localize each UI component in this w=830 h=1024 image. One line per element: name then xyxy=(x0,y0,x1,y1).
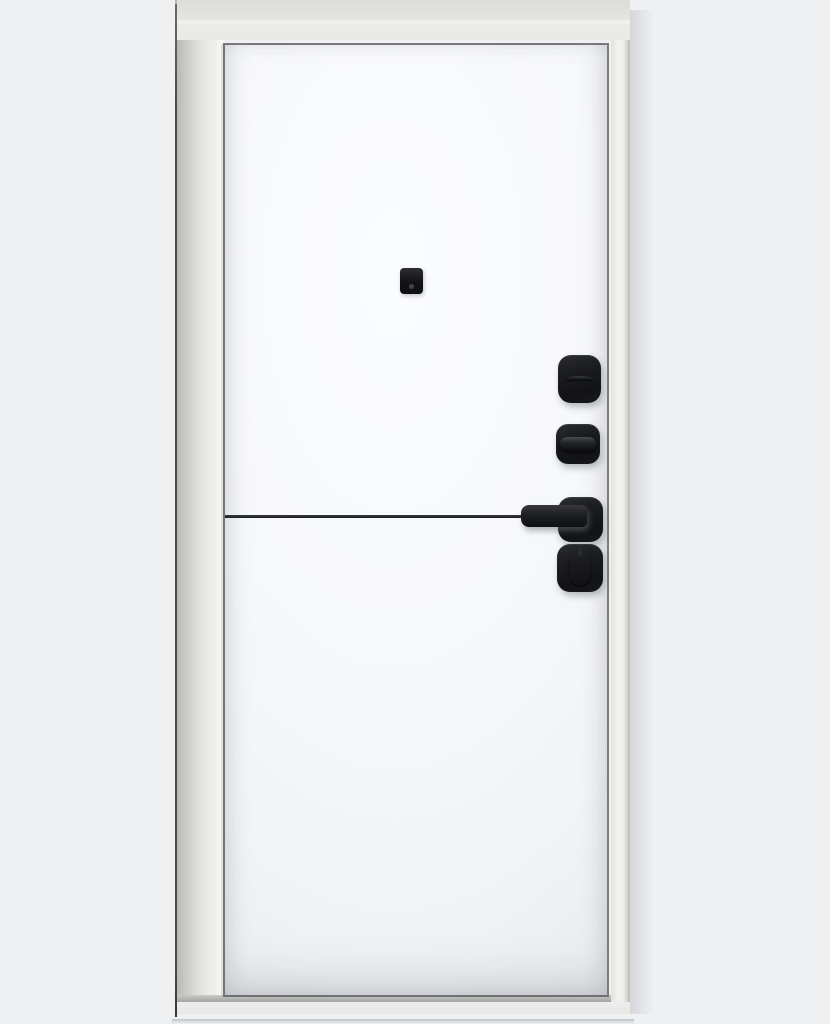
horizontal-thumbturn-knob xyxy=(560,437,596,451)
frame-bottom-shadow xyxy=(177,995,611,1002)
peephole-lens xyxy=(409,284,414,289)
keyhole-escutcheon xyxy=(558,355,601,403)
frame-cast-shadow-right xyxy=(630,10,654,1014)
frame-head-casing xyxy=(177,0,630,40)
vertical-thumbturn-knob xyxy=(570,551,590,585)
frame-right-jamb xyxy=(611,0,630,1014)
deadbolt-thumbturn-escutcheon xyxy=(557,544,603,592)
frame-left-edge xyxy=(175,4,177,1017)
keyhole-slot-icon xyxy=(566,376,593,383)
upper-thumbturn-escutcheon xyxy=(556,424,600,464)
frame-left-jamb xyxy=(175,0,225,1014)
frame-base-edge xyxy=(175,1014,630,1019)
frame-bottom-sill xyxy=(177,1002,630,1014)
product-photo xyxy=(0,0,830,1024)
frame-cast-shadow-bottom xyxy=(172,1019,634,1024)
lever-handle xyxy=(521,505,587,527)
peephole-icon xyxy=(400,268,423,294)
decorative-trim-line xyxy=(225,515,525,518)
